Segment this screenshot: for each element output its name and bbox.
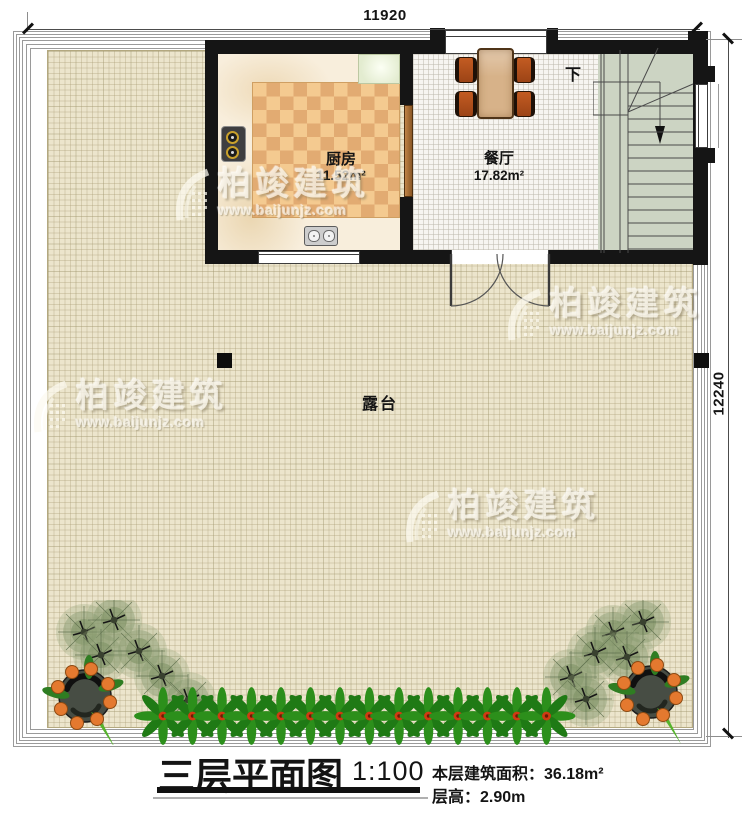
terrace-column (694, 353, 709, 368)
wall-right-pier (693, 66, 715, 82)
dining-chair (513, 57, 535, 83)
kitchen-label: 厨房 (306, 148, 376, 169)
stairs-down-label: 下 (565, 61, 581, 85)
window-kitchen-bottom (258, 251, 360, 264)
dining-table (477, 48, 514, 119)
kitchen-counter (358, 54, 400, 84)
floor-height-text: 层高：2.90m (432, 783, 525, 807)
dining-chair (455, 91, 477, 117)
dimension-extension (706, 39, 742, 40)
terrace-column (217, 353, 232, 368)
stairs-down-arrowhead (655, 126, 665, 144)
dining-label: 餐厅 (464, 147, 534, 168)
plants-decoration (35, 600, 715, 745)
double-door (449, 252, 551, 312)
door-swing-arc-right (497, 254, 549, 306)
floor-height-value: 2.90m (480, 789, 525, 806)
wall-left-kitchen (205, 54, 218, 264)
kitchen-area-label: 11.52m² (301, 168, 381, 183)
star-plant (518, 687, 576, 745)
floor-plan-canvas: 11920 12240 厨房 11.52m² 餐厅 17.82m² 下 露台 (0, 0, 750, 813)
wall-pier (430, 28, 445, 54)
wall-top-kitchen (205, 40, 445, 54)
stove-burner-icon (226, 146, 239, 159)
dimension-line-top (28, 29, 700, 30)
floor-height-label: 层高： (432, 789, 480, 806)
floor-area-label: 本层建筑面积： (432, 766, 544, 783)
plan-scale: 1:100 (352, 756, 425, 787)
dimension-line-right (728, 39, 729, 738)
dimension-label-top: 11920 (345, 7, 425, 24)
wall-kitchen-dining-upper (400, 54, 413, 105)
stove-burner-icon (226, 131, 239, 144)
kitchen-sink (304, 226, 338, 246)
dining-chair (513, 91, 535, 117)
terrace-label: 露台 (345, 390, 415, 414)
dining-chair (455, 57, 477, 83)
stairs-break-line (628, 48, 658, 112)
floor-area-text: 本层建筑面积：36.18m² (432, 760, 604, 784)
dimension-label-right: 12240 (711, 359, 728, 429)
kitchen-door-leaf (404, 105, 413, 197)
title-underline-thin (153, 797, 428, 799)
door-swing-arc-left (451, 254, 503, 306)
wall-pier (547, 28, 558, 54)
window-sill (710, 84, 719, 148)
stove (221, 126, 246, 162)
title-underline-thick (157, 787, 420, 793)
wall-kitchen-dining-lower (400, 197, 413, 253)
floor-area-value: 36.18m² (544, 766, 604, 783)
wall-right-pier (693, 148, 715, 163)
sink-basin (308, 230, 320, 242)
window-stairs-right (695, 84, 708, 148)
sink-basin (323, 230, 335, 242)
dining-area-label: 17.82m² (459, 168, 539, 183)
stairs-linework (593, 44, 695, 256)
